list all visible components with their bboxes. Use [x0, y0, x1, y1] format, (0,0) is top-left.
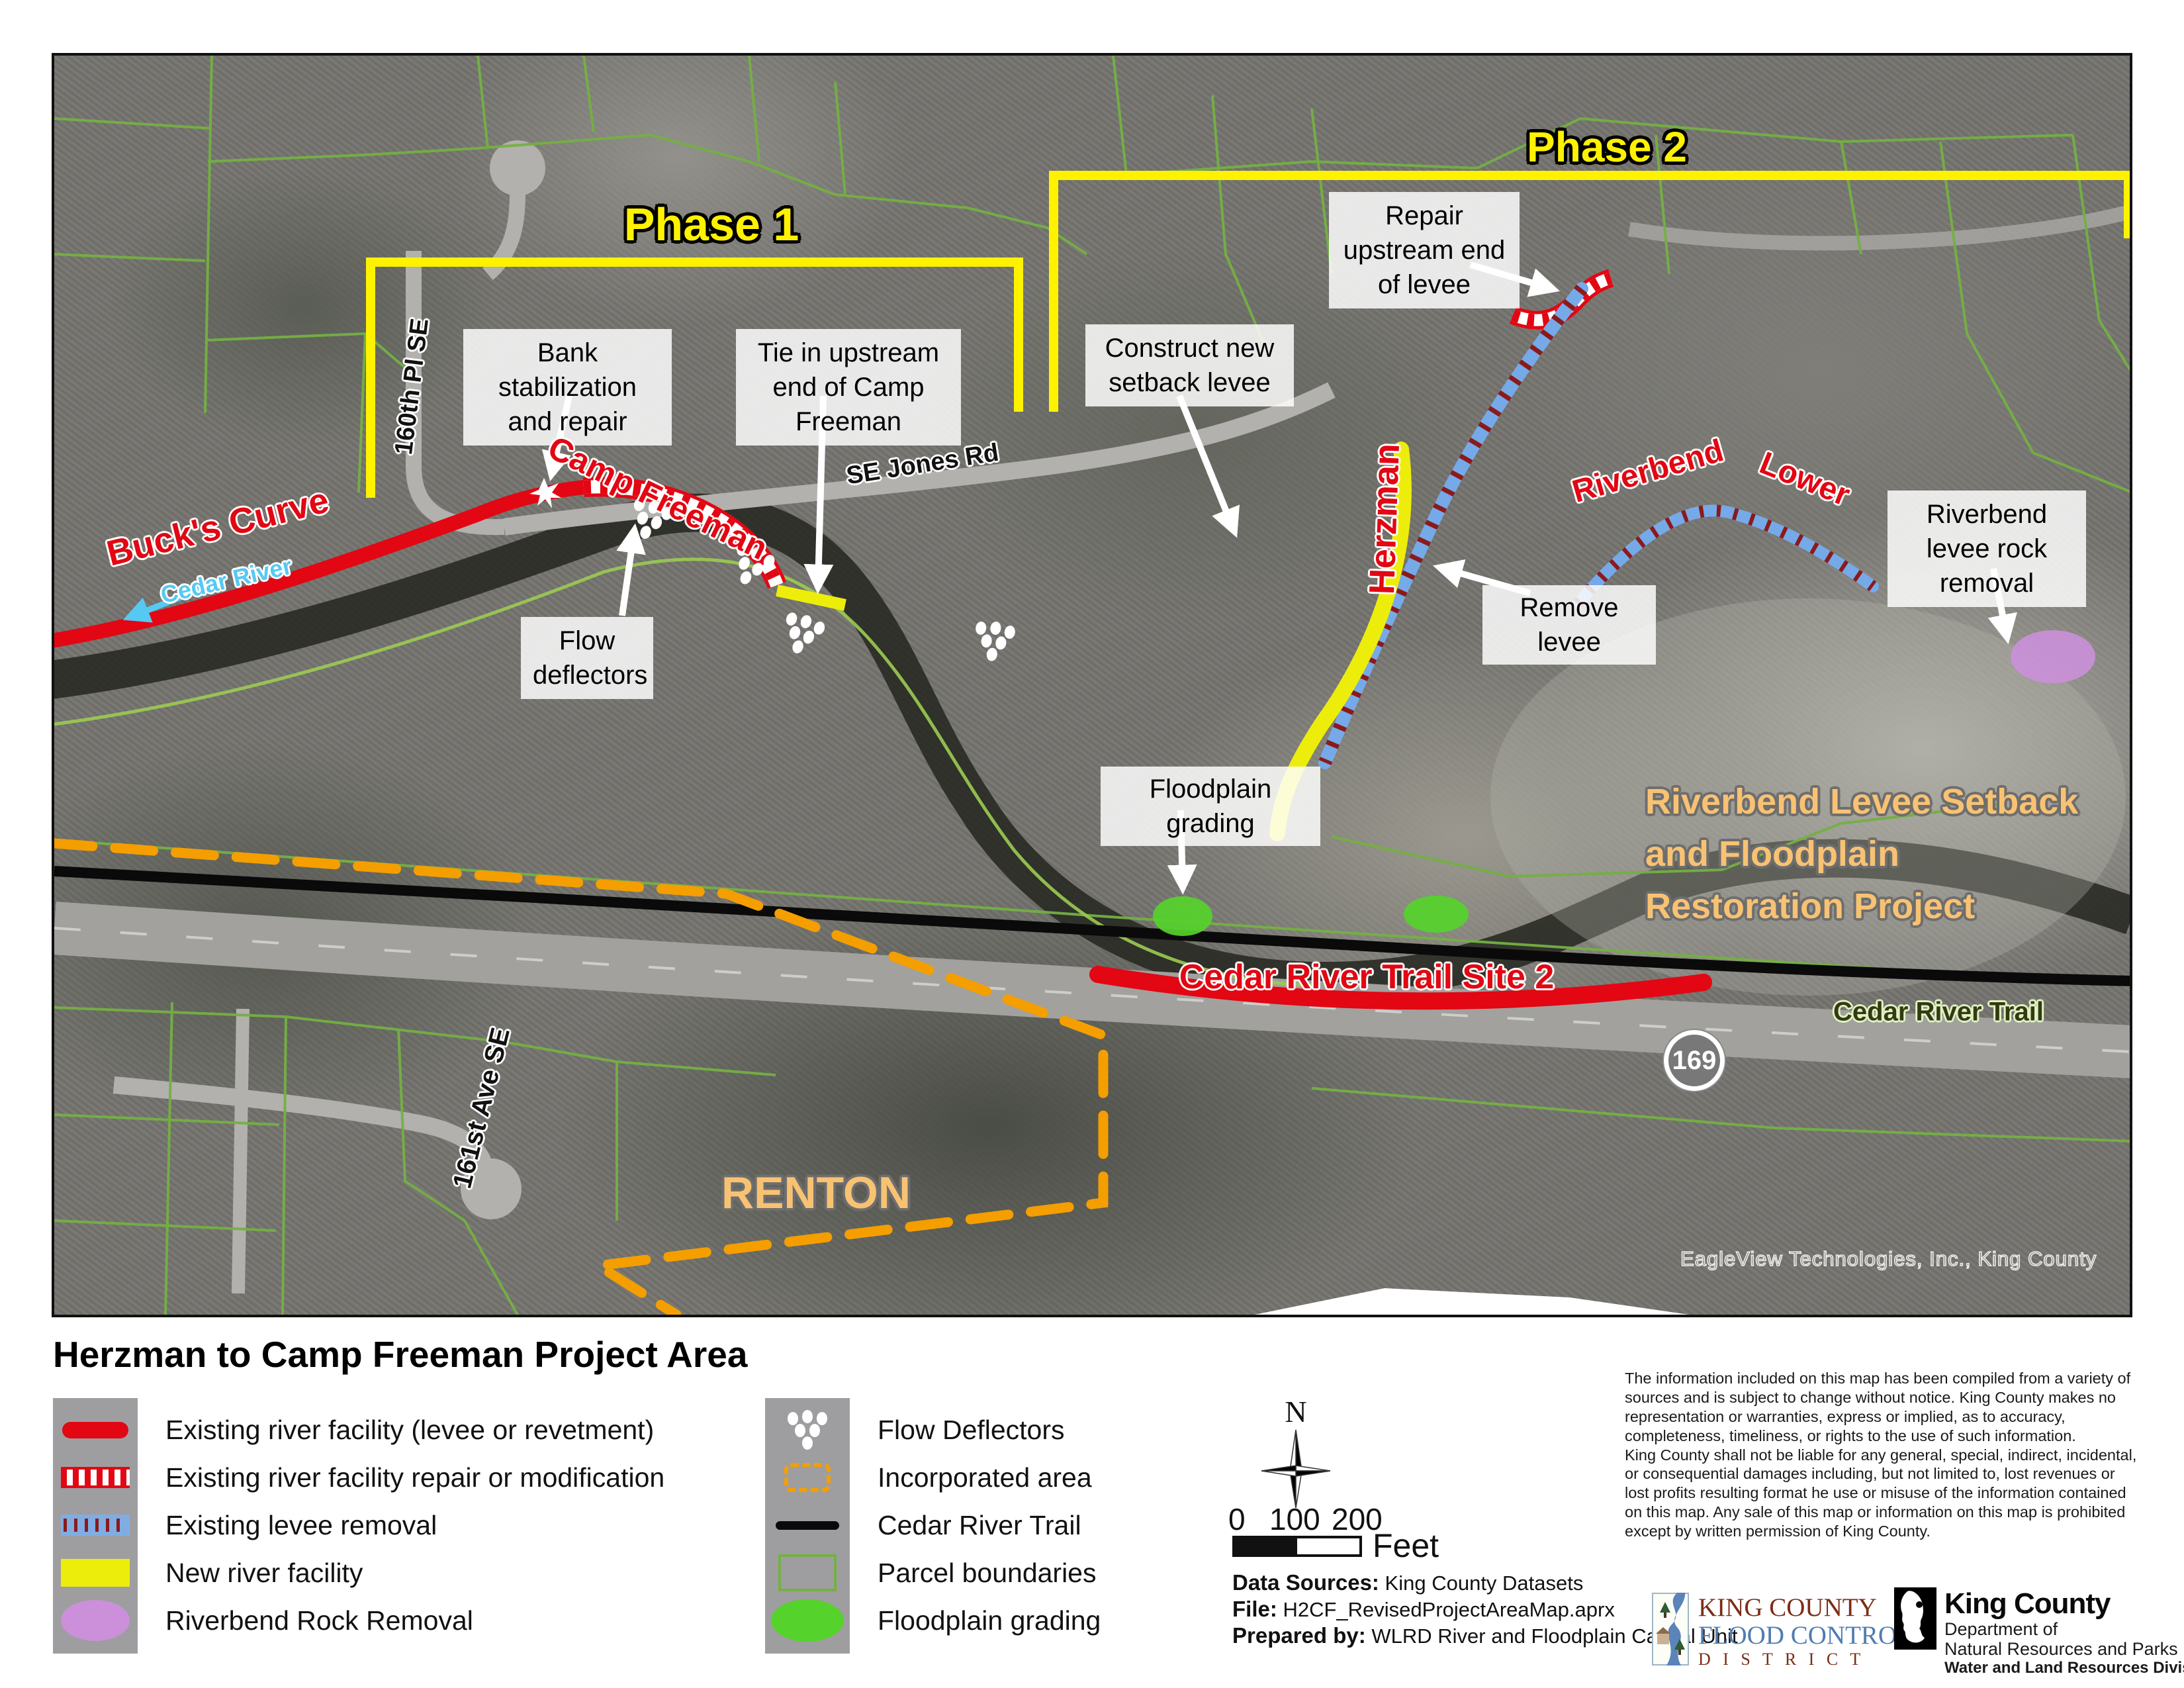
route-169-number: 169 [1672, 1046, 1717, 1076]
file-line: File: H2CF_RevisedProjectAreaMap.aprx [1232, 1597, 1615, 1622]
king-county-logo-icon [1894, 1587, 1936, 1650]
phase2-label: Phase 2 [1527, 122, 1687, 171]
phase1-label: Phase 1 [624, 198, 799, 251]
incorporated-area-swatch [784, 1463, 831, 1492]
route-169-shield: 169 [1664, 1030, 1725, 1091]
legend-label: Riverbend Rock Removal [165, 1605, 473, 1636]
callout-floodplain-grading: Floodplain grading [1101, 767, 1320, 846]
legend-label: Cedar River Trail [878, 1510, 1081, 1541]
legend-label: New river facility [165, 1558, 363, 1589]
project-title-line3: Restoration Project [1645, 880, 2078, 933]
legend-label: Flow Deflectors [878, 1415, 1065, 1446]
legend-label: Existing levee removal [165, 1510, 437, 1541]
project-title-label: Riverbend Levee Setback and Floodplain R… [1645, 776, 2078, 932]
legend-label: Incorporated area [878, 1462, 1092, 1493]
floodplain-grading-area-1 [1153, 896, 1212, 936]
callout-rock-removal: Riverbend levee rock removal [1888, 491, 2086, 607]
data-sources-value: King County Datasets [1385, 1571, 1584, 1595]
scale-unit: Feet [1373, 1526, 1439, 1565]
callout-construct-setback: Construct new setback levee [1085, 324, 1294, 406]
data-sources-line: Data Sources: King County Datasets [1232, 1570, 1583, 1595]
disclaimer: The information included on this map has… [1625, 1369, 2138, 1541]
new-facility-swatch [61, 1559, 130, 1587]
floodplain-grading-area-2 [1404, 896, 1469, 933]
imagery-watermark: EagleView Technologies, Inc., King Count… [1680, 1247, 2097, 1271]
facility-repair-swatch [61, 1467, 130, 1488]
map-features-layer [54, 56, 2130, 1315]
scale-tick-100: 100 [1269, 1501, 1320, 1537]
fcd-logo-line1: KING COUNTY [1698, 1593, 1877, 1622]
callout-flow-deflectors: Flow deflectors [521, 617, 653, 699]
callout-repair-upstream: Repair upstream end of levee [1329, 192, 1520, 308]
king-county-dept-line3: Water and Land Resources Division [1944, 1659, 2184, 1677]
rock-removal-swatch [61, 1600, 130, 1641]
scale-tick-0: 0 [1228, 1501, 1246, 1537]
king-county-dept-line2: Natural Resources and Parks [1944, 1639, 2178, 1660]
king-county-dept-line1: Department of [1944, 1619, 2058, 1640]
disclaimer-paragraph-2: King County shall not be liable for any … [1625, 1446, 2138, 1541]
project-title-line1: Riverbend Levee Setback [1645, 776, 2078, 828]
legend-item: Riverbend Rock Removal [53, 1597, 649, 1644]
cedar-river-trail-site2-label: Cedar River Trail Site 2 [1179, 957, 1555, 997]
floodplain-grading-swatch [771, 1599, 844, 1642]
legend-item: Existing river facility (levee or revetm… [53, 1406, 649, 1454]
fcd-logo-line2: FLOOD CONTROL [1698, 1620, 1913, 1650]
project-title-line2: and Floodplain [1645, 828, 2078, 880]
existing-facility-swatch [62, 1422, 128, 1438]
king-county-logo-name: King County [1944, 1587, 2111, 1620]
north-letter: N [1285, 1395, 1306, 1429]
legend-label: Existing river facility (levee or revetm… [165, 1415, 654, 1446]
callout-bank-stabilization: Bank stabilization and repair [463, 329, 672, 445]
disclaimer-paragraph-1: The information included on this map has… [1625, 1369, 2138, 1446]
riverbend-rock-removal-area [2011, 630, 2095, 683]
cedar-river-trail-label: Cedar River Trail [1833, 998, 2044, 1027]
aerial-map: Phase 1 Phase 2 Bank stabilization and r… [52, 53, 2132, 1317]
file-value: H2CF_RevisedProjectAreaMap.aprx [1283, 1598, 1614, 1621]
herzman-label: Herzman [1361, 443, 1408, 595]
file-label: File: [1232, 1597, 1277, 1621]
legend-label: Existing river facility repair or modifi… [165, 1462, 664, 1493]
data-sources-label: Data Sources: [1232, 1570, 1379, 1595]
legend-title: Herzman to Camp Freeman Project Area [53, 1333, 747, 1376]
project-map-page: Phase 1 Phase 2 Bank stabilization and r… [0, 0, 2184, 1688]
scale-bar [1232, 1536, 1362, 1557]
legend-label: Parcel boundaries [878, 1558, 1096, 1589]
legend-label: Floodplain grading [878, 1605, 1101, 1636]
legend-item: Existing levee removal [53, 1501, 649, 1549]
fcd-logo-line3: D I S T R I C T [1698, 1650, 1864, 1669]
scale-bar-filled [1235, 1538, 1297, 1554]
legend-item: New river facility [53, 1549, 649, 1597]
flood-control-district-logo-icon [1652, 1593, 1689, 1665]
parcel-boundaries-swatch [778, 1554, 837, 1591]
legend-item: Existing river facility repair or modifi… [53, 1454, 649, 1501]
flow-deflectors-swatch [782, 1408, 833, 1452]
callout-tie-in-upstream: Tie in upstream end of Camp Freeman [736, 329, 961, 445]
callout-remove-levee: Remove levee [1482, 585, 1656, 665]
renton-label: RENTON [721, 1167, 911, 1219]
prepared-by-label: Prepared by: [1232, 1623, 1366, 1648]
levee-removal-swatch [61, 1515, 130, 1536]
trail-swatch [776, 1521, 839, 1530]
